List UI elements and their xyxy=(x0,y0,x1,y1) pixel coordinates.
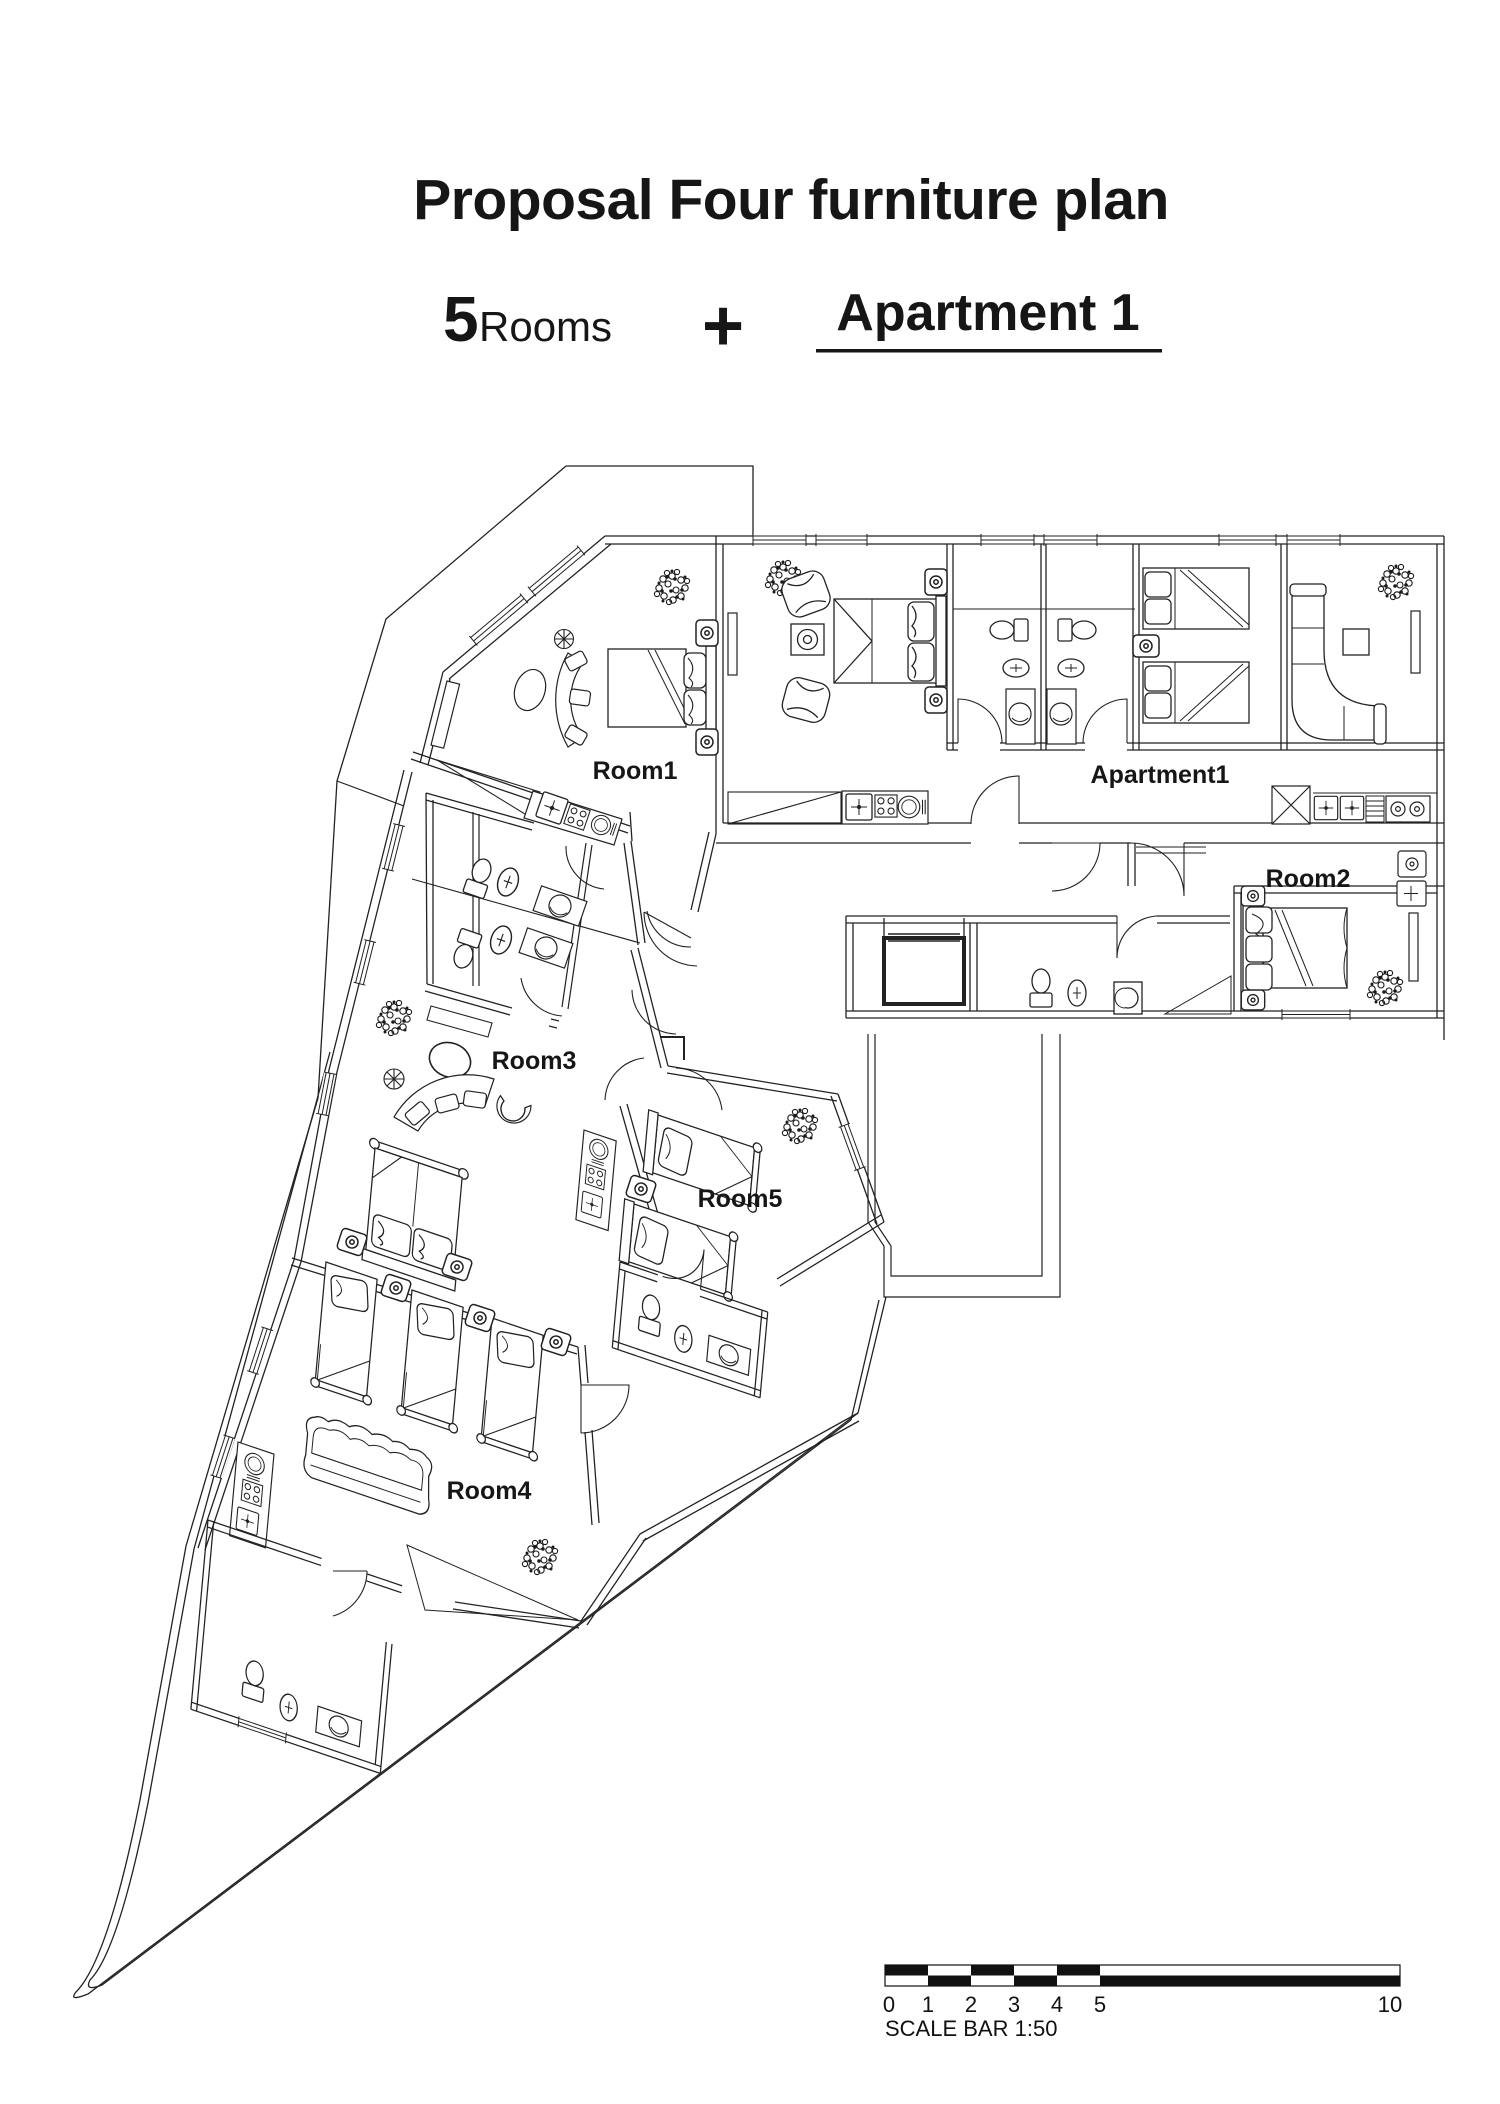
svg-text:+: + xyxy=(702,286,744,366)
svg-text:10: 10 xyxy=(1378,1992,1402,2017)
svg-text:Apartment1: Apartment1 xyxy=(1091,761,1230,789)
svg-text:Room3: Room3 xyxy=(492,1047,577,1075)
svg-text:Room2: Room2 xyxy=(1266,865,1351,893)
svg-text:2: 2 xyxy=(965,1992,977,2017)
svg-text:SCALE BAR 1:50: SCALE BAR 1:50 xyxy=(885,2016,1057,2041)
svg-text:Room1: Room1 xyxy=(593,757,678,785)
svg-text:5: 5 xyxy=(1094,1992,1106,2017)
svg-text:0: 0 xyxy=(883,1992,895,2017)
svg-text:Proposal Four furniture plan: Proposal Four furniture plan xyxy=(413,168,1169,232)
svg-text:Room4: Room4 xyxy=(447,1477,532,1505)
svg-text:Apartment 1: Apartment 1 xyxy=(836,284,1139,342)
svg-text:3: 3 xyxy=(1008,1992,1020,2017)
svg-text:4: 4 xyxy=(1051,1992,1063,2017)
svg-text:Rooms: Rooms xyxy=(479,303,612,350)
svg-text:1: 1 xyxy=(922,1992,934,2017)
svg-text:Room5: Room5 xyxy=(698,1185,783,1213)
svg-text:5: 5 xyxy=(443,283,479,355)
